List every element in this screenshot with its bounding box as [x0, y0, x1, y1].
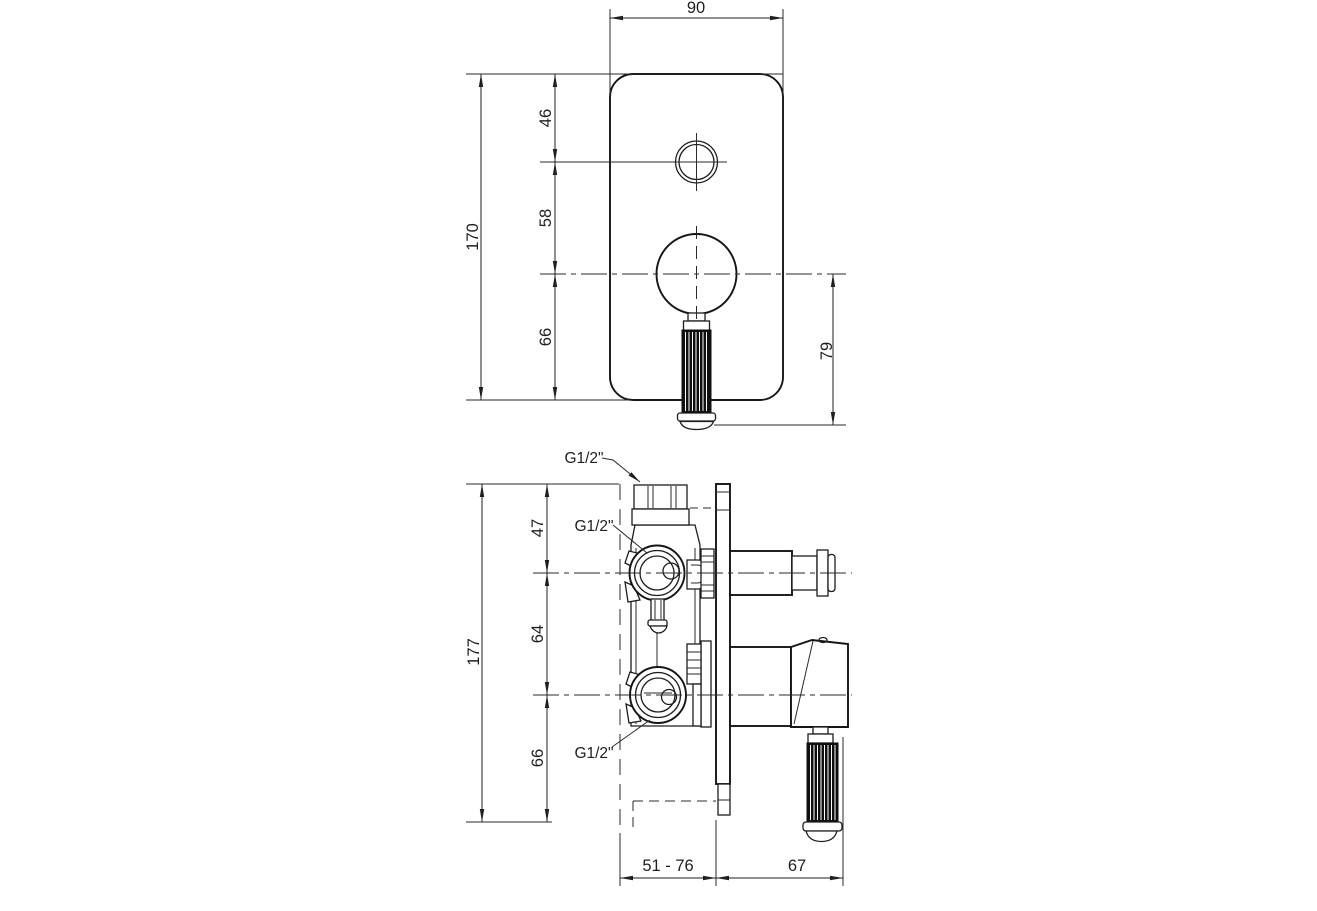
side-lever-end-cap	[806, 831, 837, 842]
dim-47-label: 47	[529, 519, 547, 537]
front-lever-handle	[678, 313, 716, 430]
front-view: 90 170 46 58 66 79	[464, 0, 846, 430]
adjustment-stem	[648, 599, 667, 633]
dim-46-label: 46	[537, 109, 555, 127]
thread-label-top: G1/2"	[564, 450, 603, 467]
dim-66-side-label: 66	[529, 749, 547, 767]
front-lever-grip-ribs	[686, 332, 707, 411]
dim-height-label: 170	[464, 223, 482, 251]
dim-66-front-label: 66	[537, 328, 555, 346]
dim-58-label: 58	[537, 209, 555, 227]
front-lever-end-cap	[680, 422, 714, 430]
thread-label-bottom: G1/2"	[574, 745, 613, 762]
technical-drawing: 90 170 46 58 66 79	[0, 0, 1317, 911]
side-lever-grip	[807, 743, 838, 822]
side-view: 177 47 64 66 51 - 76 67 G1/2" G1/2" G1/2…	[465, 450, 852, 886]
dim-protrusion-label: 67	[788, 857, 806, 875]
thread-label-middle: G1/2"	[574, 518, 613, 535]
dim-recess-depth-label: 51 - 76	[642, 857, 693, 875]
upper-side-port	[625, 546, 714, 603]
dim-width-label: 90	[687, 0, 705, 17]
dim-64-label: 64	[529, 625, 547, 643]
lever-knob-body	[791, 640, 848, 727]
lever-valve-side	[730, 638, 848, 842]
dim-79-label: 79	[818, 342, 836, 360]
top-inlet-port	[632, 485, 689, 525]
mounting-plate-side	[716, 484, 730, 815]
dim-177-label: 177	[465, 638, 483, 666]
